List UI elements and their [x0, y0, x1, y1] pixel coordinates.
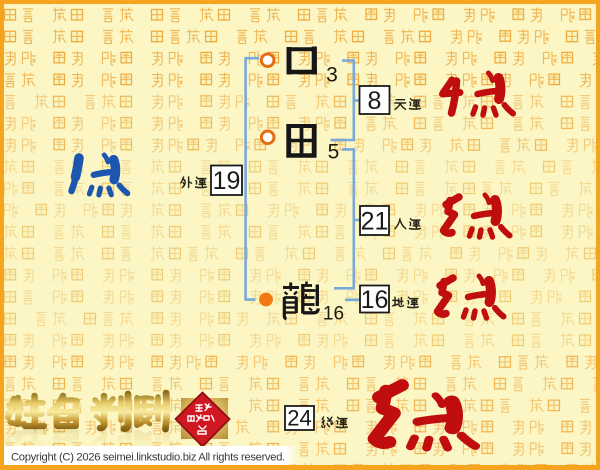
svg-text:16: 16 [323, 304, 344, 325]
svg-text:3: 3 [326, 64, 338, 87]
svg-text:5: 5 [328, 141, 340, 164]
svg-text:24: 24 [287, 406, 311, 431]
svg-text:Copyright (C) 2026 seimei.link: Copyright (C) 2026 seimei.linkstudio.biz… [11, 452, 285, 464]
svg-text:21: 21 [361, 207, 389, 235]
svg-text:8: 8 [368, 87, 382, 115]
svg-text:19: 19 [213, 167, 241, 195]
svg-text:16: 16 [361, 286, 389, 314]
